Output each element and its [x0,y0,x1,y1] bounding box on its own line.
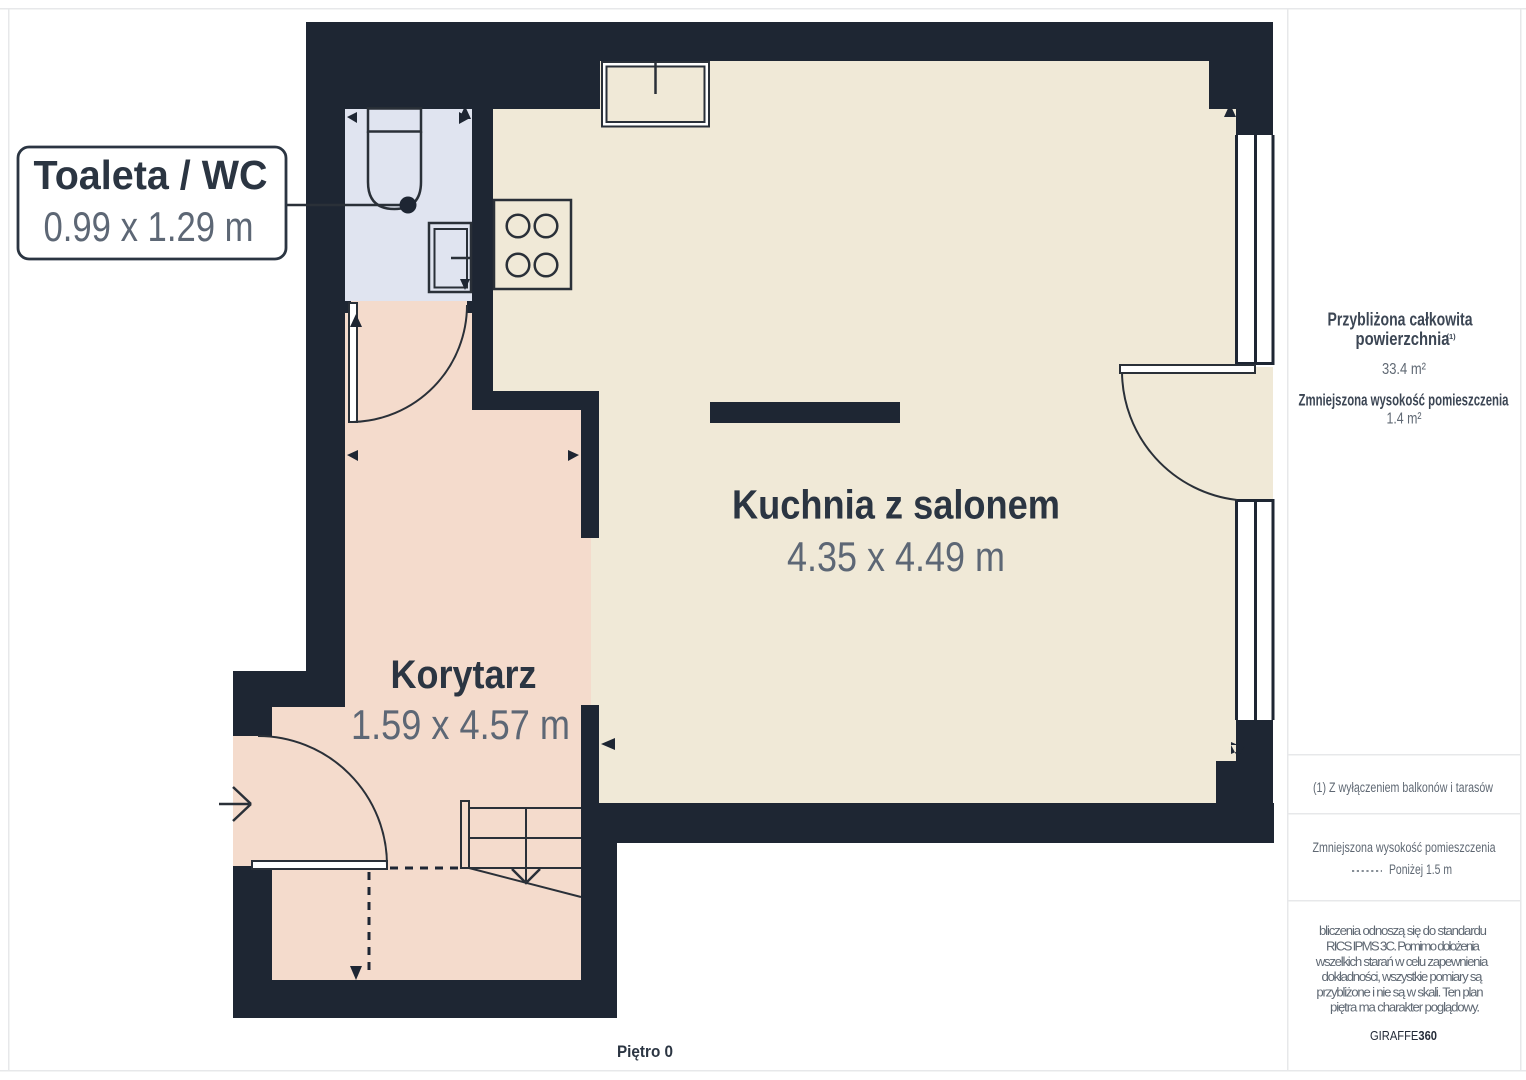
svg-text:4.35 x 4.49 m: 4.35 x 4.49 m [787,533,1005,580]
svg-text:1.59 x 4.57 m: 1.59 x 4.57 m [351,701,570,748]
svg-text:1.4 m²: 1.4 m² [1387,411,1423,428]
svg-text:przybliżone i nie są w skali.: przybliżone i nie są w skali. Ten plan [1316,985,1483,1000]
svg-text:Przybliżona całkowita: Przybliżona całkowita [1328,310,1474,330]
svg-text:Piętro 0: Piętro 0 [617,1042,673,1061]
svg-text:powierzchnia: powierzchnia [1356,329,1451,349]
svg-text:Korytarz: Korytarz [391,653,537,697]
svg-text:RICS IPMS 3C. Pomimo dołożenia: RICS IPMS 3C. Pomimo dołożenia [1326,939,1481,954]
svg-text:dokładności, wszystkie pomiary: dokładności, wszystkie pomiary są [1322,969,1484,984]
svg-text:GIRAFFE360: GIRAFFE360 [1370,1028,1437,1043]
svg-text:33.4 m²: 33.4 m² [1382,361,1427,378]
svg-text:Poniżej 1.5 m: Poniżej 1.5 m [1389,862,1452,877]
svg-text:(1): (1) [1447,332,1457,341]
svg-text:Kuchnia z salonem: Kuchnia z salonem [732,482,1060,528]
svg-text:Zmniejszona wysokość pomieszcz: Zmniejszona wysokość pomieszczenia [1313,840,1496,855]
svg-text:bliczenia odnoszą się do stand: bliczenia odnoszą się do standardu [1319,923,1487,938]
svg-text:Zmniejszona wysokość pomieszcz: Zmniejszona wysokość pomieszczenia [1299,392,1510,410]
svg-text:Toaleta / WC: Toaleta / WC [34,152,268,198]
svg-text:(1) Z wyłączeniem balkonów i t: (1) Z wyłączeniem balkonów i tarasów [1313,780,1493,795]
svg-text:wszelkich starań w celu zapewn: wszelkich starań w celu zapewnienia [1315,954,1489,969]
svg-text:piętra ma charakter poglądowy.: piętra ma charakter poglądowy. [1330,1000,1480,1015]
svg-text:0.99 x 1.29 m: 0.99 x 1.29 m [44,203,254,250]
